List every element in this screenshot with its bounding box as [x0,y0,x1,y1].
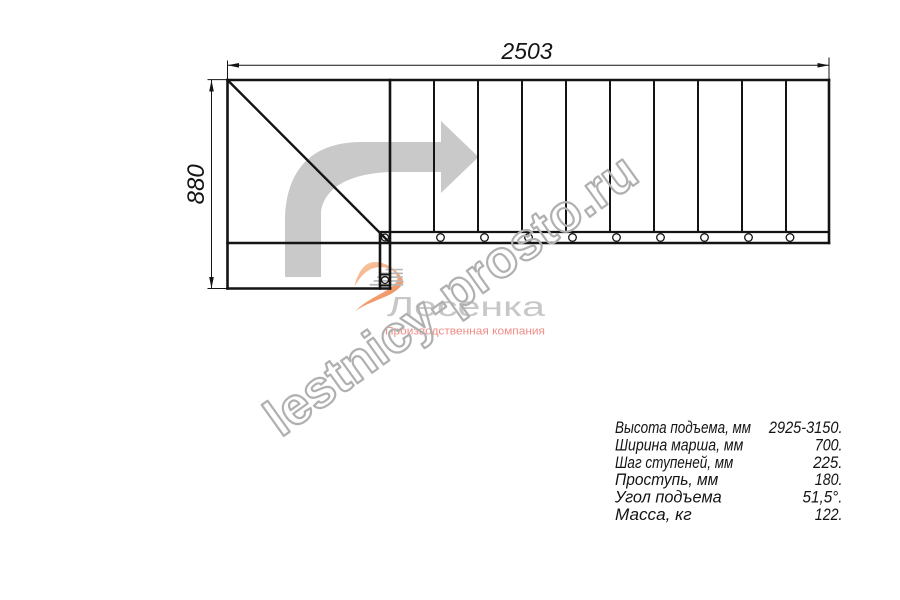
svg-text:Ширина марша, мм: Ширина марша, мм [615,435,744,454]
svg-text:180.: 180. [815,470,843,489]
svg-text:Шаг ступеней, мм: Шаг ступеней, мм [615,453,734,472]
svg-text:122.: 122. [815,505,843,524]
svg-text:2503: 2503 [500,38,552,64]
svg-text:Проступь, мм: Проступь, мм [615,470,719,489]
svg-text:2925-3150.: 2925-3150. [768,418,842,437]
svg-text:880: 880 [183,164,210,205]
svg-text:Высота подъема, мм: Высота подъема, мм [615,418,751,437]
svg-text:700.: 700. [815,435,843,454]
svg-text:225.: 225. [812,453,842,472]
svg-text:Масса, кг: Масса, кг [615,505,692,524]
svg-text:51,5°.: 51,5°. [803,488,843,507]
svg-text:Угол подъема: Угол подъема [614,488,722,507]
